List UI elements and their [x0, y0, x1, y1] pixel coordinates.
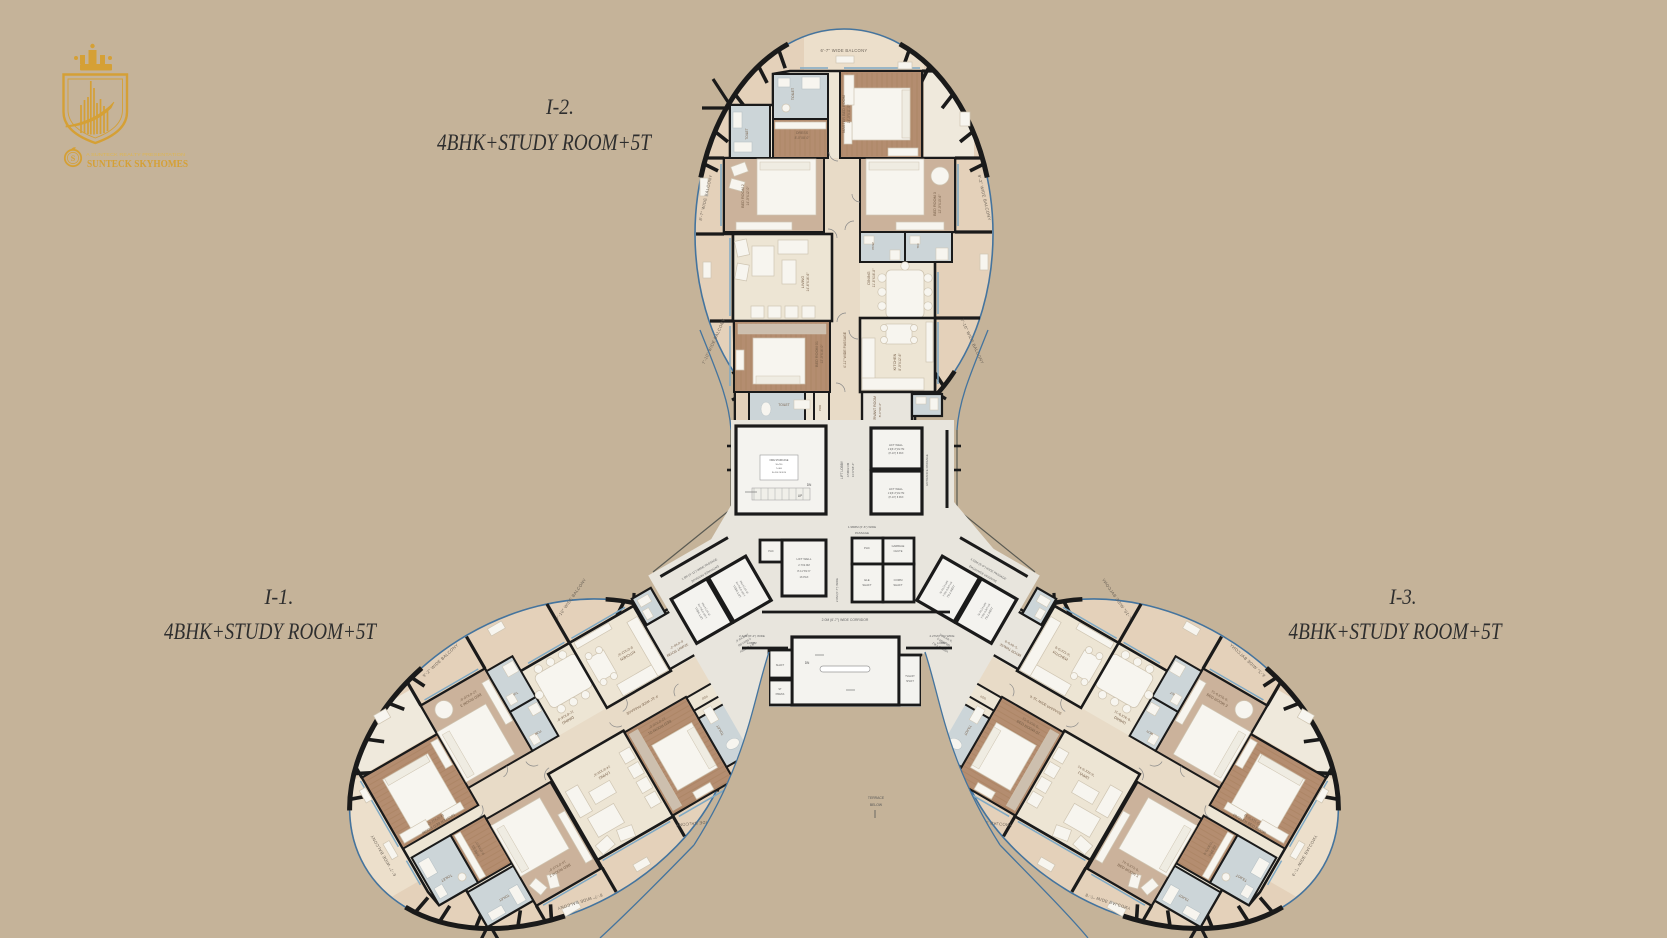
svg-text:BELOW: BELOW — [870, 803, 883, 807]
svg-text:4BHK+STUDY ROOM+5T: 4BHK+STUDY ROOM+5T — [1289, 619, 1504, 644]
svg-text:2.0M (6'-7") WIDE: 2.0M (6'-7") WIDE — [835, 578, 839, 602]
svg-text:SHAFT: SHAFT — [776, 663, 785, 667]
svg-text:2.7X2.9M: 2.7X2.9M — [798, 563, 810, 567]
svg-text:COMM: COMM — [894, 578, 904, 582]
svg-text:LOBBY: LOBBY — [747, 641, 757, 645]
svg-text:DN: DN — [807, 483, 812, 487]
svg-text:8'-11"X9'-6": 8'-11"X9'-6" — [797, 569, 810, 573]
svg-text:1.98MM (6'-6") WIDE: 1.98MM (6'-6") WIDE — [848, 525, 876, 529]
svg-text:DN: DN — [805, 661, 810, 665]
svg-text:GARBAGE: GARBAGE — [892, 544, 905, 548]
svg-text:W=750: W=750 — [776, 464, 783, 466]
svg-text:4BHK+STUDY ROOM+5T: 4BHK+STUDY ROOM+5T — [437, 130, 653, 155]
svg-text:4BHK+STUDY ROOM+5T: 4BHK+STUDY ROOM+5T — [164, 619, 378, 644]
svg-text:SHAFT: SHAFT — [906, 680, 914, 683]
svg-text:ELE: ELE — [864, 578, 869, 582]
svg-text:A SUNTECK REALTY PRESENTATION: A SUNTECK REALTY PRESENTATION — [86, 152, 185, 157]
svg-text:PHC: PHC — [864, 546, 870, 550]
svg-text:FIRE STAIRCASE: FIRE STAIRCASE — [770, 459, 789, 462]
svg-text:UP: UP — [798, 494, 802, 498]
svg-text:PRESS: PRESS — [776, 692, 785, 696]
svg-text:PHC: PHC — [768, 549, 774, 553]
svg-text:2.27M(7'-0") WIDE: 2.27M(7'-0") WIDE — [930, 634, 955, 638]
svg-text:SHAFT: SHAFT — [862, 583, 871, 587]
svg-text:I-1.: I-1. — [264, 584, 294, 609]
svg-text:2.0M (6'-7") WIDE CORRIDOR: 2.0M (6'-7") WIDE CORRIDOR — [822, 618, 869, 622]
svg-text:LIFT WELL: LIFT WELL — [796, 557, 811, 561]
svg-text:CHUTE: CHUTE — [894, 549, 903, 553]
svg-text:I-2.: I-2. — [545, 94, 574, 119]
svg-text:S: S — [71, 154, 76, 163]
svg-text:2.44M (8'-4") WIDE: 2.44M (8'-4") WIDE — [739, 634, 765, 638]
svg-text:ST: ST — [778, 687, 782, 691]
svg-text:R=150 26 NOS: R=150 26 NOS — [772, 472, 787, 474]
svg-text:16 PAX: 16 PAX — [800, 575, 809, 579]
svg-text:SUNTECK SKYHOMES: SUNTECK SKYHOMES — [87, 159, 188, 170]
svg-text:TERRACE: TERRACE — [868, 796, 885, 800]
svg-text:T=300: T=300 — [776, 468, 783, 470]
svg-text:SHAFT: SHAFT — [893, 583, 902, 587]
svg-text:PASSAGE: PASSAGE — [855, 531, 869, 535]
svg-text:LOBBY: LOBBY — [937, 641, 947, 645]
svg-text:TV&LIFT: TV&LIFT — [905, 675, 915, 678]
svg-text:I-3.: I-3. — [1389, 584, 1417, 609]
